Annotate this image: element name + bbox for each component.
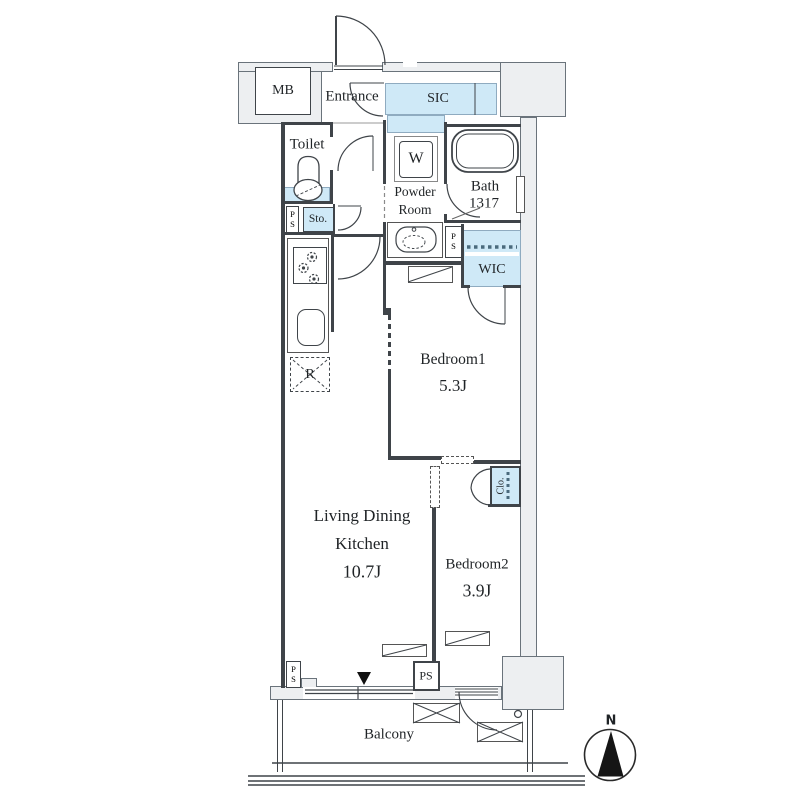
wall-notch bbox=[403, 62, 417, 67]
wall bbox=[281, 124, 285, 688]
wall bbox=[383, 120, 386, 184]
ps-letter: S bbox=[290, 220, 295, 230]
ps-letter: S bbox=[451, 242, 456, 252]
bathtub-inner bbox=[457, 134, 514, 168]
label-ldk-2: Kitchen bbox=[335, 534, 389, 554]
ac-unit-2 bbox=[477, 722, 523, 742]
wall bbox=[444, 124, 521, 127]
compass-circle bbox=[585, 730, 636, 781]
balcony-drain bbox=[515, 711, 522, 718]
wall bbox=[330, 124, 333, 137]
wall bbox=[503, 285, 521, 288]
wall bbox=[488, 504, 521, 507]
label-sto: Sto. bbox=[309, 213, 327, 225]
label-entrance: Entrance bbox=[325, 89, 378, 106]
window-sill-gap-bedroom2 bbox=[455, 687, 498, 699]
bathtub-outer bbox=[452, 130, 518, 172]
wall bbox=[385, 261, 463, 265]
wall bbox=[333, 204, 335, 232]
balcony-edge-lines bbox=[248, 776, 585, 785]
wall bbox=[333, 234, 385, 237]
pipe-space-bottom-left: P S bbox=[286, 661, 301, 688]
label-wic: WIC bbox=[478, 262, 505, 278]
hall-door-arc bbox=[338, 237, 380, 279]
wall bbox=[473, 460, 521, 464]
wall bbox=[281, 201, 333, 204]
label-bedroom1-size: 5.3J bbox=[439, 376, 467, 396]
wall bbox=[444, 122, 447, 184]
balcony-post-left bbox=[277, 700, 283, 772]
wall bbox=[388, 371, 391, 460]
label-closet: Clo. bbox=[496, 478, 507, 495]
ac-unit-1 bbox=[413, 703, 460, 723]
open-partition-vertical bbox=[430, 466, 440, 508]
label-toilet: Toilet bbox=[290, 137, 325, 154]
wic-door-arc bbox=[468, 287, 505, 324]
label-sic: SIC bbox=[427, 91, 449, 107]
entrance-door-arc bbox=[336, 16, 385, 65]
kitchen-sink bbox=[297, 309, 325, 346]
label-refrigerator: R bbox=[305, 367, 314, 383]
compass-needle bbox=[598, 731, 624, 777]
beam-box-2 bbox=[382, 644, 427, 657]
wall bbox=[388, 456, 442, 460]
bath-window bbox=[516, 176, 525, 213]
beam-box-1 bbox=[408, 266, 453, 283]
direction-marker bbox=[357, 672, 371, 685]
label-washer: W bbox=[408, 150, 423, 168]
label-bedroom1: Bedroom1 bbox=[420, 351, 485, 369]
label-bath: Bath bbox=[471, 179, 499, 196]
wall bbox=[331, 234, 334, 332]
floor-plan: P S P S P S bbox=[0, 0, 800, 800]
wall bbox=[330, 170, 333, 204]
ps-letter: S bbox=[291, 675, 296, 685]
wall bbox=[383, 308, 391, 315]
label-bedroom2: Bedroom2 bbox=[445, 557, 508, 574]
wic-divider bbox=[465, 252, 519, 256]
vanity-counter bbox=[387, 222, 443, 258]
pipe-space-top-left: P S bbox=[286, 206, 299, 233]
label-powder-1: Powder bbox=[394, 184, 435, 200]
entrance-sill bbox=[334, 66, 383, 70]
wall bbox=[444, 220, 521, 223]
sic-area-lower bbox=[387, 115, 445, 133]
label-powder-2: Room bbox=[398, 202, 431, 218]
label-bedroom2-size: 3.9J bbox=[463, 581, 492, 602]
window-sill-gap-ldk bbox=[303, 687, 415, 699]
wall-mass-pillar bbox=[502, 656, 564, 710]
wall bbox=[461, 285, 470, 288]
toilet-tank bbox=[298, 157, 319, 191]
wic-area bbox=[463, 230, 521, 287]
toilet-door-arc bbox=[338, 136, 373, 171]
label-ldk-1: Living Dining bbox=[314, 506, 411, 526]
label-ps-bottom: PS bbox=[419, 669, 432, 684]
wall-dashed bbox=[388, 315, 391, 371]
label-balcony: Balcony bbox=[364, 727, 414, 744]
wall bbox=[383, 222, 386, 312]
closet-folding-door bbox=[471, 469, 490, 505]
label-mb: MB bbox=[272, 83, 294, 99]
stove bbox=[293, 247, 327, 284]
label-compass-north: N bbox=[606, 714, 617, 729]
wall bbox=[432, 506, 436, 662]
wall-mass-top-right-block bbox=[500, 62, 566, 117]
sto-door-arc bbox=[338, 207, 361, 230]
label-bath-size: 1317 bbox=[469, 196, 499, 213]
label-ldk-size: 10.7J bbox=[343, 562, 382, 583]
balcony-post-right bbox=[527, 710, 533, 772]
wall bbox=[281, 122, 333, 125]
beam-box-3 bbox=[445, 631, 490, 646]
toilet-floor-strip bbox=[283, 187, 330, 202]
pipe-space-wic: P S bbox=[445, 226, 462, 258]
open-partition-horizontal bbox=[441, 456, 474, 464]
